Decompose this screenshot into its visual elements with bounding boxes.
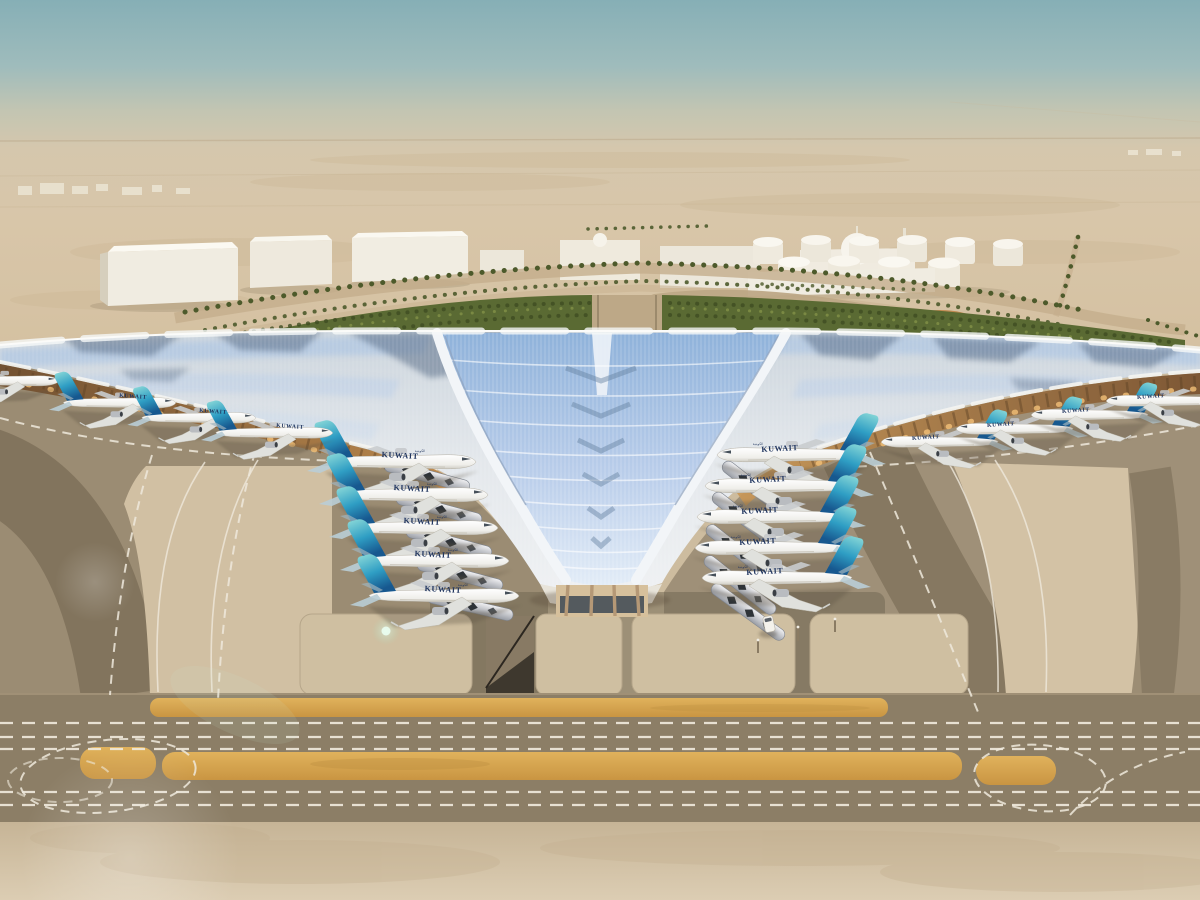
aircraft-livery-arabic: الكويتية (741, 473, 751, 477)
aircraft-livery-arabic: الكويتية (458, 583, 468, 587)
aircraft-livery-arabic: الكويتية (733, 504, 743, 508)
aircraft-livery-arabic: الكويتية (448, 548, 458, 552)
aircraft-livery-arabic: الكويتية (415, 449, 425, 453)
aircraft-livery-arabic: الكويتية (753, 442, 763, 446)
scene-canvas: KUWAIT KUWAIT KUWAIT KUWAIT KUWAIT KUWAI… (0, 0, 1200, 900)
airport-aerial-rendering: KUWAIT KUWAIT KUWAIT KUWAIT KUWAIT KUWAI… (0, 0, 1200, 900)
aircraft-livery-arabic: الكويتية (427, 482, 437, 486)
aircraft-livery-arabic: الكويتية (731, 535, 741, 539)
tunnel-ramp (486, 616, 534, 695)
aircraft-livery-arabic: الكويتية (437, 515, 447, 519)
aircraft-livery-arabic: الكويتية (738, 565, 748, 569)
